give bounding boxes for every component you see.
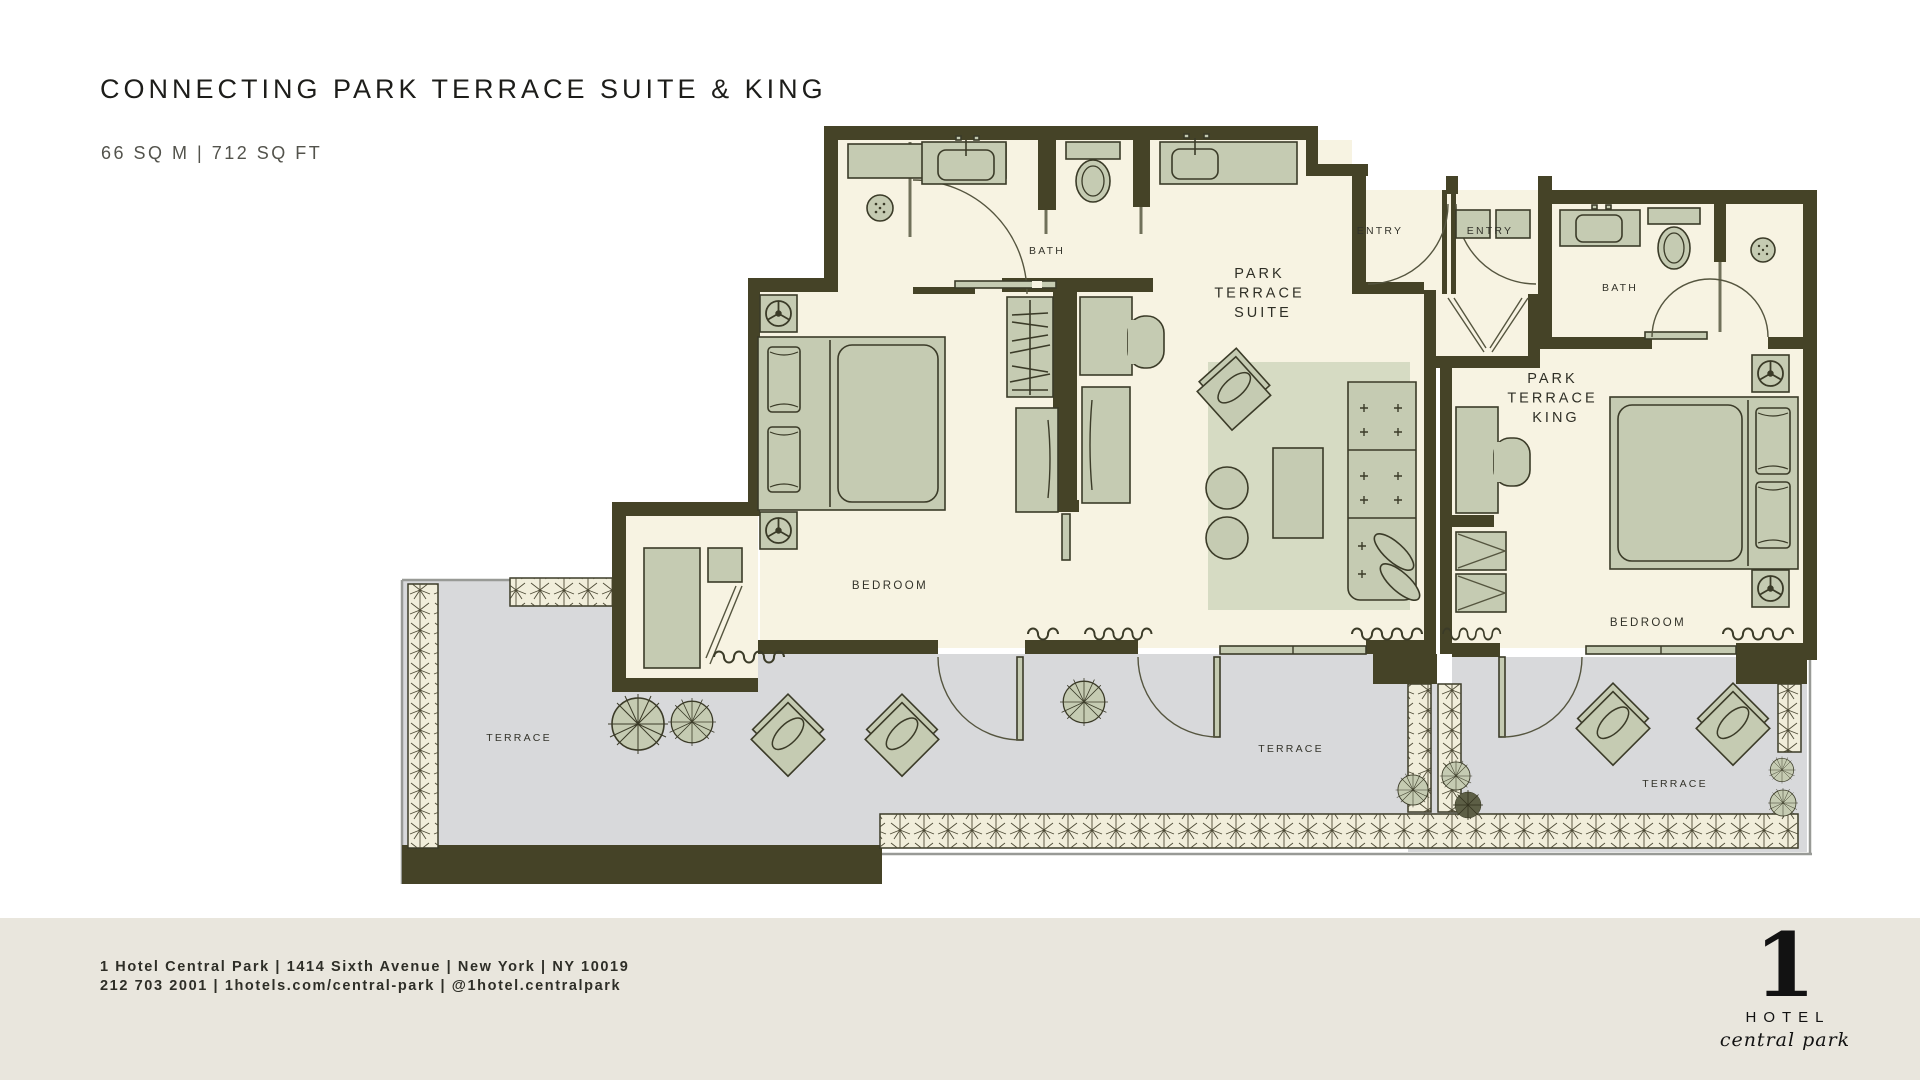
nightstand-fan-icon bbox=[760, 295, 797, 332]
suite-living-room bbox=[1193, 348, 1425, 610]
label-entry-right: ENTRY bbox=[1467, 225, 1513, 237]
sofa bbox=[1348, 382, 1425, 606]
label-bedroom-left: BEDROOM bbox=[852, 580, 928, 592]
logo-script-text: central park bbox=[1696, 1029, 1874, 1051]
bed-king-left bbox=[758, 337, 945, 510]
floor-plan: BATH ENTRY ENTRY BATH PARK TERRACE SUITE… bbox=[0, 0, 1920, 1080]
vanity-sink bbox=[1560, 205, 1640, 246]
nightstand-fan-icon bbox=[1752, 355, 1789, 392]
vanity-sink bbox=[922, 136, 1006, 184]
logo-numeral: 1 bbox=[1696, 922, 1874, 1008]
closet-hangers bbox=[1007, 297, 1053, 397]
footer-phone-web: 212 703 2001 | 1hotels.com/central-park … bbox=[100, 977, 629, 996]
shower-head-icon bbox=[1751, 238, 1775, 262]
nightstand-fan-icon bbox=[760, 512, 797, 549]
label-terrace-middle: TERRACE bbox=[1258, 743, 1324, 755]
label-terrace-right: TERRACE bbox=[1642, 778, 1708, 790]
logo-hotel-text: HOTEL bbox=[1696, 1009, 1874, 1026]
label-bath-right: BATH bbox=[1602, 282, 1638, 294]
label-bedroom-right: BEDROOM bbox=[1610, 617, 1686, 629]
label-terrace-left: TERRACE bbox=[486, 732, 552, 744]
label-bath-left: BATH bbox=[1029, 245, 1065, 257]
footer-address: 1 Hotel Central Park | 1414 Sixth Avenue… bbox=[100, 958, 629, 977]
shower-head-icon bbox=[867, 195, 893, 221]
nightstand-fan-icon bbox=[1752, 570, 1789, 607]
side-table bbox=[1206, 517, 1248, 559]
side-table bbox=[1206, 467, 1248, 509]
footer-contact: 1 Hotel Central Park | 1414 Sixth Avenue… bbox=[100, 958, 629, 996]
terrace-wall bbox=[402, 845, 882, 884]
bed-king-right bbox=[1610, 397, 1798, 569]
label-entry-left: ENTRY bbox=[1357, 225, 1403, 237]
hotel-logo: 1 HOTEL central park bbox=[1696, 922, 1874, 1051]
coffee-table bbox=[1273, 448, 1323, 538]
floorplan-sheet: CONNECTING PARK TERRACE SUITE & KING 66 … bbox=[0, 0, 1920, 1080]
kitchenette-counter bbox=[1160, 134, 1297, 184]
